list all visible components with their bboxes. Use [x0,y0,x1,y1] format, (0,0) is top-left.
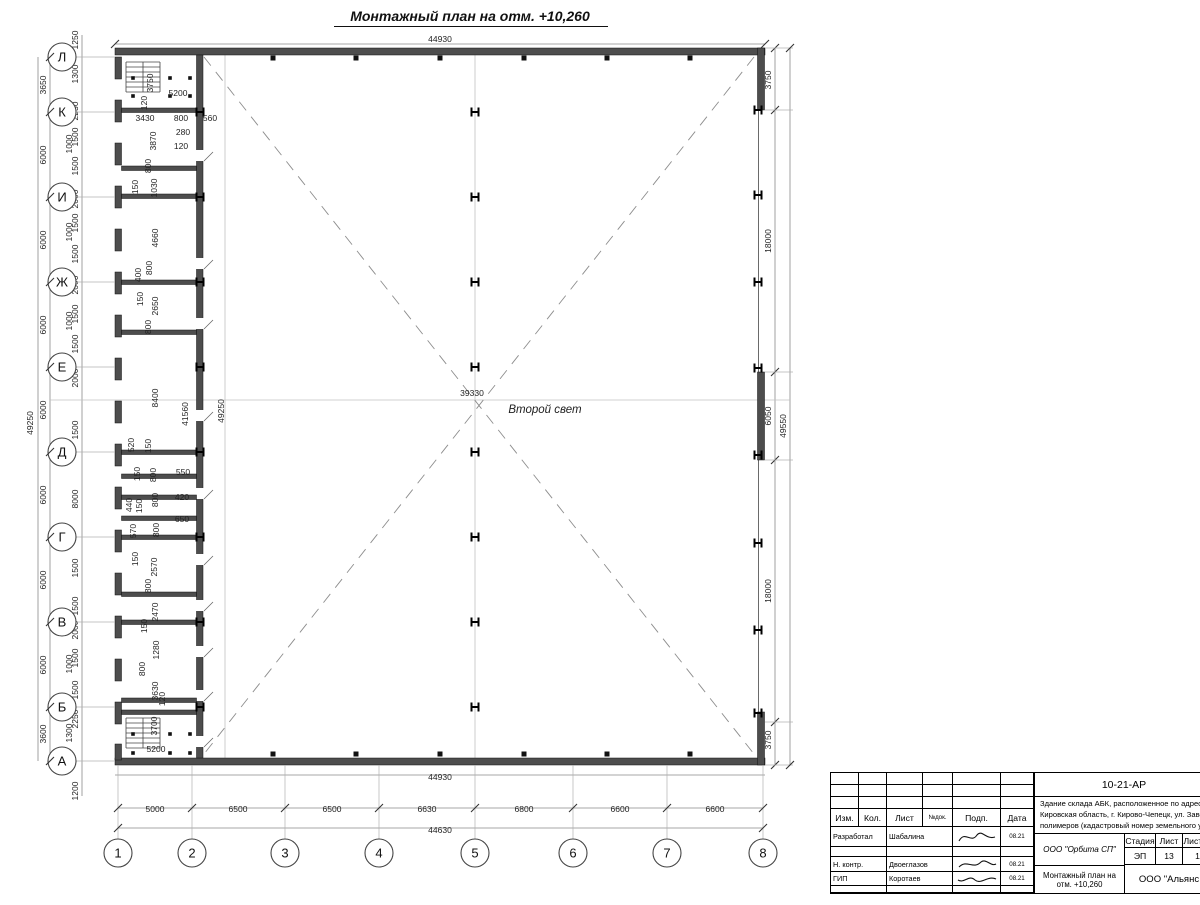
h-column [755,191,762,200]
dim-label: 420 [175,492,189,502]
dim-label: 6000 [38,230,48,249]
dim-label: 6500 [229,804,248,814]
dim-label: 8400 [150,388,160,407]
axis-label-Б: Б [58,700,67,715]
axis-label-И: И [57,190,66,205]
axis-label-2: 2 [188,846,195,861]
door-leaf [204,320,213,329]
dim-label: 2470 [150,602,160,621]
left-wall-pier [115,401,122,423]
column-dot [168,732,172,736]
dim-label: 6600 [706,804,725,814]
row-gip-date: 08.21 [1001,872,1034,886]
dim-label: 4660 [150,228,160,247]
axis-label-3: 3 [281,846,288,861]
row-ncontr-role: Н. контр. [831,857,887,872]
dim-label: 120 [139,96,149,110]
dim-label: 520 [126,438,136,452]
dim-label: 440 [124,498,134,512]
dim-label: 800 [143,320,153,334]
h-column [755,364,762,373]
dimension-labels: 5000650065006630680066006600365060006000… [38,30,773,814]
door-leaf [204,260,213,269]
left-wall-pier [115,487,122,509]
axis-label-Ж: Ж [56,275,68,290]
dim-label: 400 [133,268,143,282]
h-column [755,278,762,287]
dim-label: 5200 [147,744,166,754]
col-podp: Подп. [953,809,1001,827]
dim-label: 800 [148,468,158,482]
column-dot [188,94,192,98]
door-leaf [204,412,213,421]
column-dot [188,751,192,755]
left-wall-pier [115,186,122,208]
wall-post [271,56,276,61]
wall-post [688,752,693,757]
dim-label: 6000 [38,145,48,164]
col-izm: Изм. [831,809,859,827]
axis-label-5: 5 [471,846,478,861]
dim-label: 1500 [70,156,80,175]
document-code: 10-21-АР [1035,773,1200,797]
dim-label: 6050 [763,406,773,425]
dim-left-total: 49250 [25,411,35,435]
dim-label: 120 [157,692,167,706]
door-opening [196,258,205,269]
door-opening [196,690,205,701]
door-leaf [204,152,213,161]
left-wall-pier [115,444,122,466]
column-dot [188,732,192,736]
dim-bottom-wall: 44930 [428,772,452,782]
row-gip-role: ГИП [831,872,887,886]
dim-label: 6600 [611,804,630,814]
dim-label: 6500 [323,804,342,814]
bottom-wall [115,758,765,765]
left-wall-pier [115,57,122,79]
column-dot [131,751,135,755]
wall-post [354,56,359,61]
wall-post [605,752,610,757]
door-opening [196,600,205,611]
dim-label: 6800 [515,804,534,814]
axis-label-К: К [58,105,66,120]
dim-top-total: 44930 [428,34,452,44]
wall-post [438,56,443,61]
dim-label: 6000 [38,315,48,334]
dim-label: 800 [144,261,154,275]
left-wall-pier [115,143,122,165]
row-developer-date: 08.21 [1001,827,1034,847]
axis-label-А: А [58,754,67,769]
row-ncontr-name: Двоеглазов [887,857,953,872]
dim-label: 3750 [763,730,773,749]
dim-label: 1000 [64,134,74,153]
door-opening [196,646,205,657]
dim-label: 120 [174,141,188,151]
dim-label: 1000 [64,222,74,241]
axis-label-Д: Д [58,445,67,460]
door-opening [196,318,205,329]
dim-label: 650 [175,514,189,524]
dim-label: 3750 [763,70,773,89]
door-opening [196,736,205,747]
dim-label: 3430 [136,113,155,123]
dim-label: 560 [203,113,217,123]
description-line: Здание склада АБК, расположенное по адре… [1040,798,1200,809]
title-block: Изм. Кол. Лист №док. Подп. Дата Разработ… [830,772,1200,894]
column-dot [131,732,135,736]
drawing-title: Монтажный план на отм. +10,260 [350,8,590,24]
dim-label: 5000 [146,804,165,814]
left-wall-pier [115,315,122,337]
partition-wall [122,330,197,335]
dim-label: 1500 [70,420,80,439]
dim-label: 6000 [38,485,48,504]
dim-label: 3600 [38,724,48,743]
dim-center-span: 39330 [460,388,484,398]
axis-label-Г: Г [58,530,65,545]
door-leaf [204,602,213,611]
dim-label: 1500 [70,558,80,577]
stage-table: Стадия Лист Листов ЭП 13 1 [1125,834,1200,865]
signature [953,857,1001,872]
dim-label: 1200 [70,781,80,800]
dim-label: 150 [139,619,149,633]
axis-label-Е: Е [58,360,67,375]
door-leaf [204,556,213,565]
signature [953,872,1001,886]
dim-label: 150 [132,467,142,481]
wall-post [271,752,276,757]
dim-bottom-total: 44630 [428,825,452,835]
row-ncontr-date: 08.21 [1001,857,1034,872]
project-description: Здание склада АБК, расположенное по адре… [1035,797,1200,834]
wall-post [688,56,693,61]
sheet-title: Монтажный план на отм. +10,260 [1035,866,1124,893]
dim-label: 3650 [38,75,48,94]
dim-inner-span-a: 41560 [180,402,190,426]
sheets-total: 1 [1183,848,1200,864]
column-dot [188,76,192,80]
client-organization: ООО "Альянс [1125,865,1200,893]
dim-label: 1000 [64,654,74,673]
dim-inner-span-b: 49250 [216,399,226,423]
dim-label: 8000 [70,489,80,508]
dim-label: 1280 [151,640,161,659]
door-leaf [204,490,213,499]
left-wall-pier [115,744,122,760]
left-wall-pier [115,530,122,552]
dim-label: 1300 [64,723,74,742]
col-kol: Кол. [859,809,887,827]
partition-wall [122,710,197,715]
dim-label: 800 [143,579,153,593]
wall-post [354,752,359,757]
dim-label: 1500 [70,334,80,353]
dim-label: 3750 [145,73,155,92]
wall-post [522,56,527,61]
column-dot [168,76,172,80]
dim-label: 800 [143,159,153,173]
floor-plan-drawing: Монтажный план на отм. +10,260 5000 [0,0,1200,900]
dim-label: 800 [150,493,160,507]
dim-label: 800 [137,662,147,676]
dim-label: 1500 [70,244,80,263]
axis-label-6: 6 [569,846,576,861]
sheet-number: 13 [1156,848,1183,864]
sheet-header: Лист [1156,834,1183,848]
title-block-signature-table: Изм. Кол. Лист №док. Подп. Дата Разработ… [831,773,1035,893]
sheets-header: Листов [1183,834,1200,848]
dim-label: 150 [134,499,144,513]
dim-label: 550 [176,467,190,477]
description-line: полимеров (кадастровый номер земельного … [1040,820,1200,831]
axis-label-8: 8 [759,846,766,861]
dim-label: 1030 [149,178,159,197]
door-leaf [204,648,213,657]
design-organization: ООО "Орбита СП" [1035,834,1124,866]
dim-label: 3700 [149,716,159,735]
row-developer-role: Разработал [831,827,887,847]
walls [115,48,765,765]
dim-right-total: 49550 [778,414,788,438]
left-wall-pier [115,229,122,251]
dim-label: 18000 [763,579,773,603]
axis-label-Л: Л [58,50,67,65]
dim-label: 6630 [418,804,437,814]
h-column [755,626,762,635]
top-wall [115,48,765,55]
dim-label: 570 [128,524,138,538]
wall-post [605,56,610,61]
description-line: Кировская область, г. Кирово-Чепецк, ул.… [1040,809,1200,820]
left-wall-pier [115,573,122,595]
axis-label-В: В [58,615,67,630]
door-leaf [204,738,213,747]
column-dot [131,76,135,80]
col-ndok: №док. [923,809,953,827]
dim-label: 280 [176,127,190,137]
partition-wall [122,166,197,171]
partition-wall [122,108,197,113]
dim-label: 150 [130,552,140,566]
left-wall-pier [115,100,122,122]
door-opening [196,150,205,161]
dim-label: 6000 [38,655,48,674]
row-gip-name: Коротаев [887,872,953,886]
roof-bracing-dashed [204,57,754,754]
axis-label-1: 1 [114,846,121,861]
stage-value: ЭП [1125,848,1156,864]
dim-label: 2650 [150,296,160,315]
left-wall-pier [115,272,122,294]
wall-post [522,752,527,757]
column-dot [168,751,172,755]
stage-header: Стадия [1125,834,1156,848]
second-light-label: Второй свет [508,404,582,416]
dim-label: 5200 [169,88,188,98]
dim-label: 6000 [38,570,48,589]
wall-post [438,752,443,757]
col-data: Дата [1001,809,1034,827]
door-leaf [204,692,213,701]
left-wall-pier [115,659,122,681]
dim-label: 150 [143,439,153,453]
h-column [755,539,762,548]
left-wall-pier [115,702,122,724]
left-wall-pier [115,616,122,638]
dim-label: 800 [151,523,161,537]
dim-label: 1000 [64,311,74,330]
door-opening [196,488,205,499]
door-opening [196,410,205,421]
dim-label: 3870 [148,131,158,150]
column-dot [131,94,135,98]
dim-label: 150 [135,292,145,306]
col-list: Лист [887,809,923,827]
left-wall-pier [115,358,122,380]
axis-label-4: 4 [375,846,382,861]
partition-wall [122,592,197,597]
dim-label: 2570 [149,557,159,576]
dim-label: 18000 [763,229,773,253]
dim-label: 6000 [38,400,48,419]
interior-walls [115,55,213,760]
axis-label-7: 7 [663,846,670,861]
door-opening [196,554,205,565]
dim-label: 150 [130,180,140,194]
signature [953,827,1001,847]
row-developer-name: Шабалина [887,827,953,847]
dim-label: 800 [174,113,188,123]
